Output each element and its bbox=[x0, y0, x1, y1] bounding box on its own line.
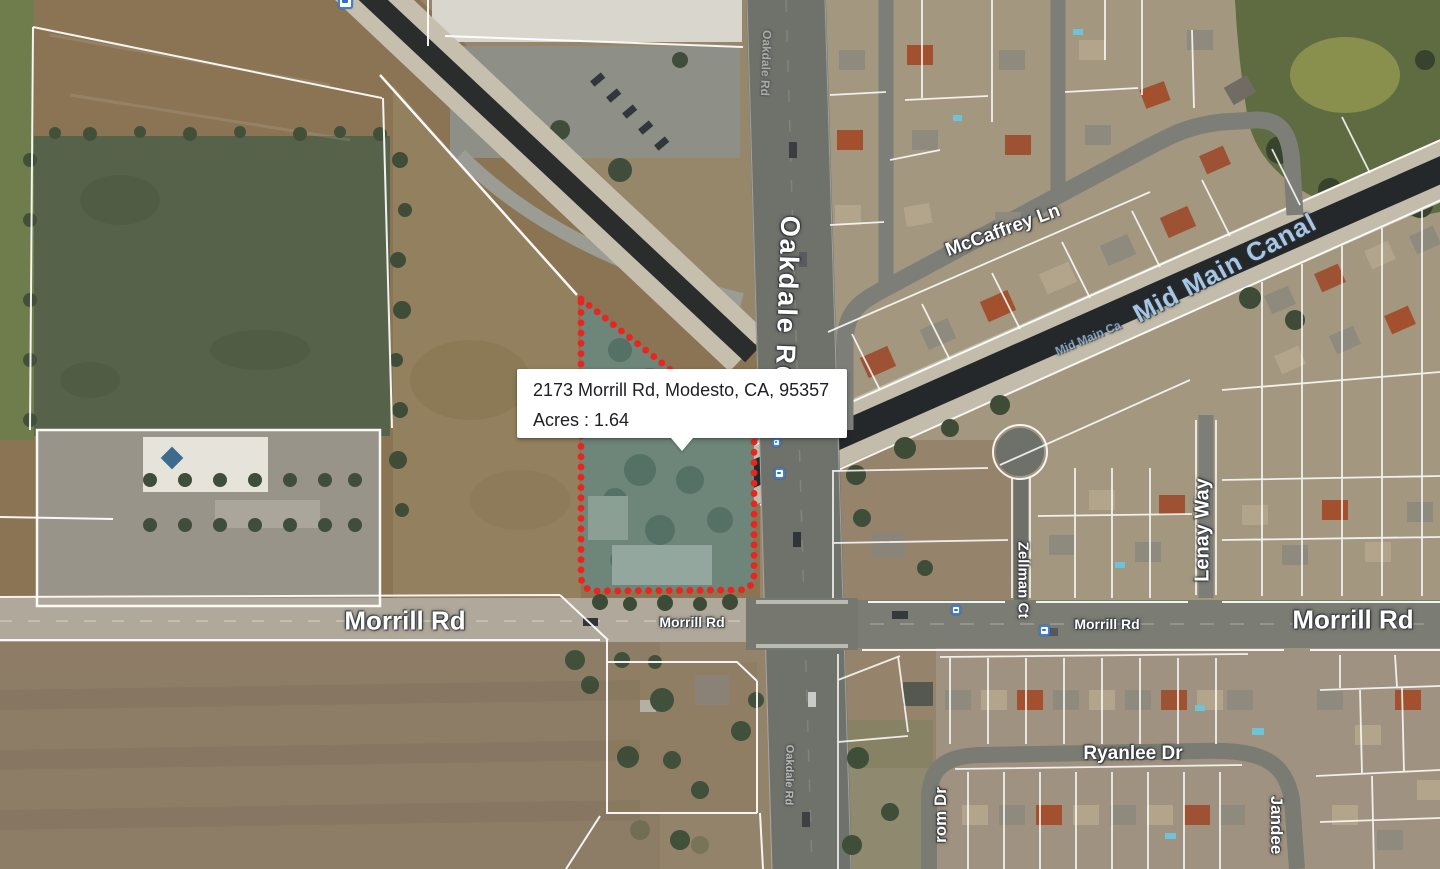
bus-glyph bbox=[1042, 629, 1046, 632]
parcel-info-tooltip: 2173 Morrill Rd, Modesto, CA, 95357 Acre… bbox=[517, 369, 847, 438]
bus-glyph bbox=[342, 0, 348, 3]
bus-stop-4-icon[interactable] bbox=[1039, 625, 1050, 636]
map-canvas[interactable]: Oakdale RdOakdale RdOakdale RdMcCaffrey … bbox=[0, 0, 1440, 869]
map-marker-top-icon[interactable] bbox=[338, 0, 353, 9]
bus-stop-3-icon[interactable] bbox=[951, 605, 961, 615]
bus-glyph bbox=[954, 609, 957, 612]
tooltip-address: 2173 Morrill Rd, Modesto, CA, 95357 bbox=[533, 375, 847, 405]
bus-glyph bbox=[777, 472, 781, 475]
bus-stop-1-icon[interactable] bbox=[772, 438, 781, 447]
bus-glyph bbox=[775, 441, 778, 443]
bus-stop-2-icon[interactable] bbox=[774, 468, 785, 479]
tooltip-acres: Acres : 1.64 bbox=[533, 405, 847, 435]
tooltip-caret-icon bbox=[671, 438, 693, 451]
